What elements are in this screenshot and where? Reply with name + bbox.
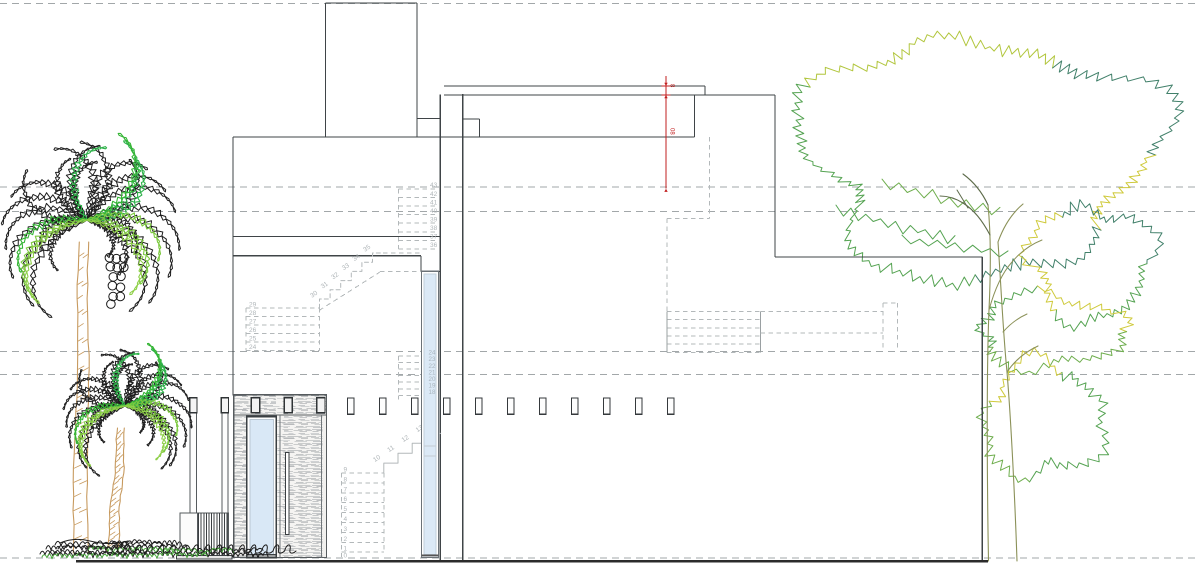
svg-text:39: 39 xyxy=(430,216,438,223)
svg-text:3: 3 xyxy=(344,526,348,533)
svg-text:42: 42 xyxy=(430,191,438,198)
svg-text:8: 8 xyxy=(344,476,348,483)
svg-text:36: 36 xyxy=(430,242,438,249)
svg-text:43: 43 xyxy=(430,182,438,189)
svg-text:24: 24 xyxy=(249,344,257,351)
svg-text:38: 38 xyxy=(430,225,438,232)
svg-text:29: 29 xyxy=(249,302,257,309)
svg-text:37: 37 xyxy=(430,234,438,241)
svg-text:18: 18 xyxy=(429,389,436,396)
svg-text:26: 26 xyxy=(249,327,257,334)
svg-text:4: 4 xyxy=(344,516,348,523)
svg-text:9: 9 xyxy=(344,467,348,474)
svg-text:2: 2 xyxy=(344,536,348,543)
svg-text:5: 5 xyxy=(344,506,348,513)
svg-text:08: 08 xyxy=(669,128,675,135)
svg-text:7: 7 xyxy=(344,486,348,493)
svg-text:41: 41 xyxy=(430,199,438,206)
svg-text:25: 25 xyxy=(249,336,257,343)
svg-text:28: 28 xyxy=(249,310,257,317)
svg-text:6: 6 xyxy=(344,496,348,503)
svg-text:40: 40 xyxy=(430,208,438,215)
svg-text:0: 0 xyxy=(344,553,348,560)
svg-text:27: 27 xyxy=(249,319,257,326)
